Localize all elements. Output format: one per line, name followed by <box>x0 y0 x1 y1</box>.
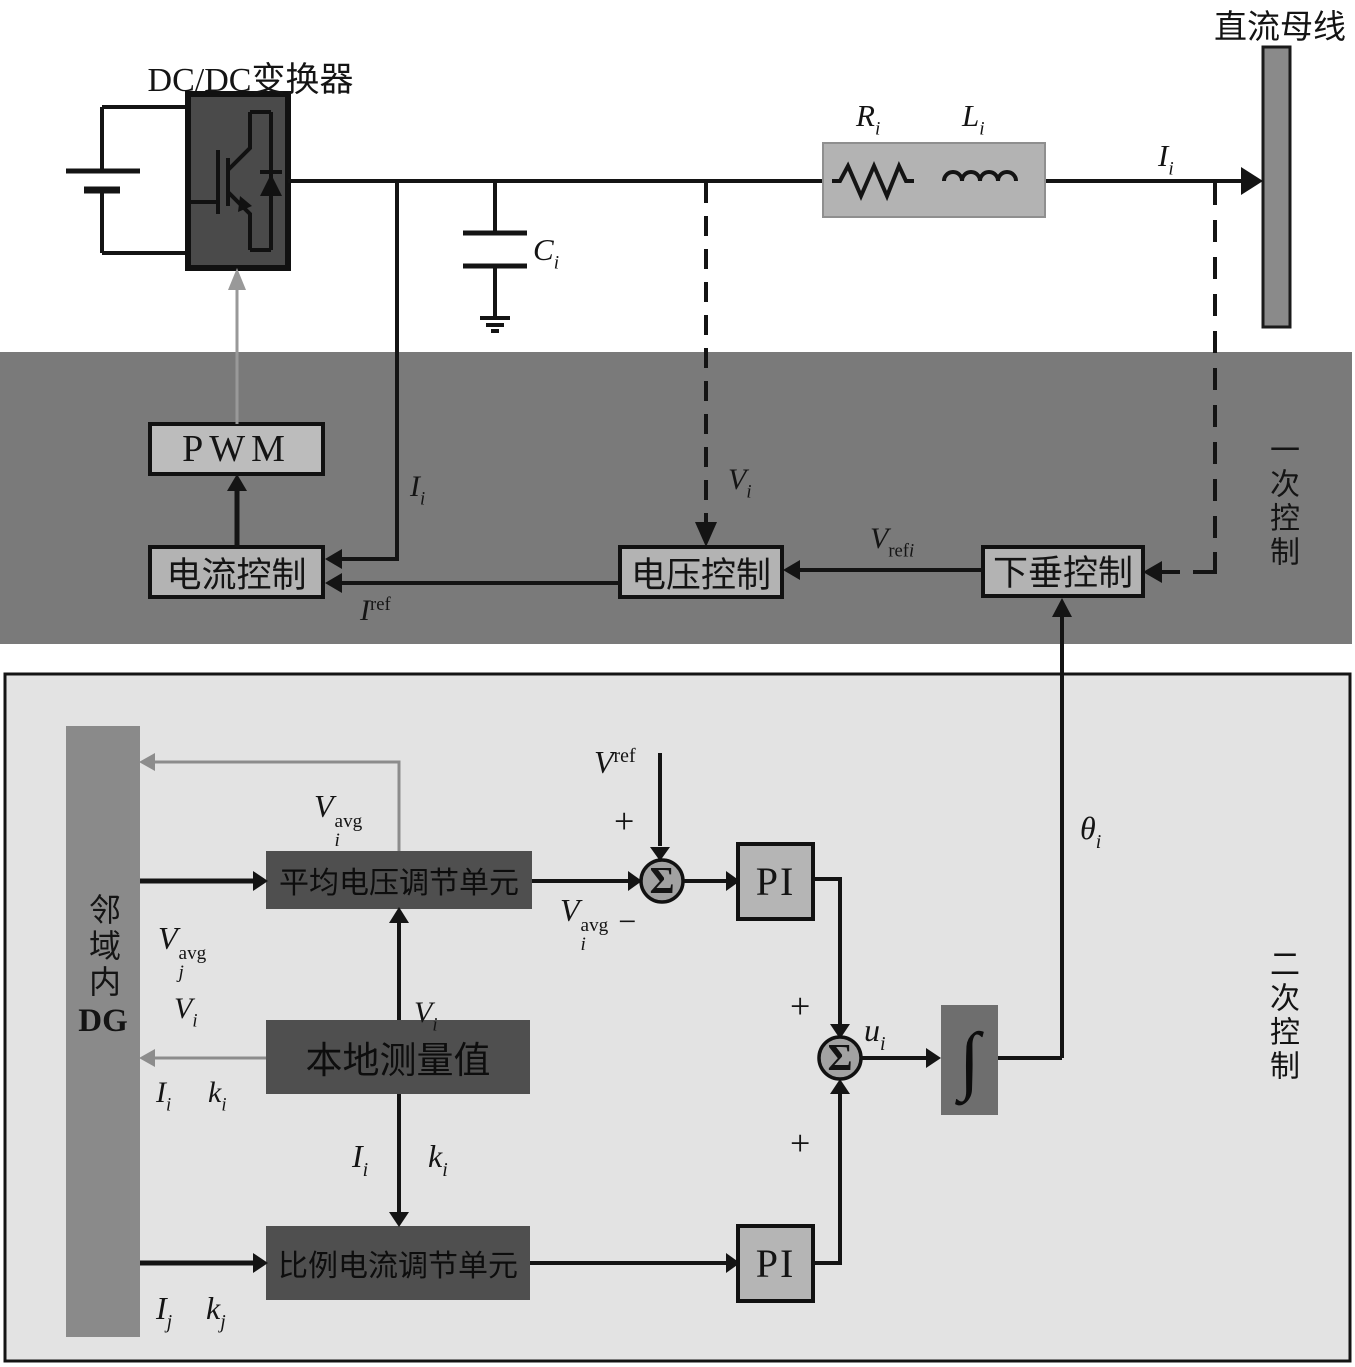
voltage-control-label: 电压控制 <box>620 547 782 597</box>
vref-label: Vref <box>594 744 636 781</box>
dc-microgrid-control-diagram: 直流母线 DC/DC变换器 Ci Ri Li Ii 一次控制 二次控制 PWM … <box>0 0 1355 1367</box>
vi-to-dg-label: Vi <box>174 992 198 1032</box>
diagram-canvas <box>0 0 1355 1367</box>
primary-section-label: 一次控制 <box>1264 434 1298 570</box>
ij-label: Ij <box>156 1290 172 1334</box>
resistance-label: Ri <box>856 98 880 141</box>
current-control-label: 电流控制 <box>150 547 323 597</box>
vi-up-label: Vi <box>414 996 438 1036</box>
bus-arrowhead <box>1241 167 1263 195</box>
capacitor-plates <box>463 233 527 266</box>
ii-to-dg-label: Ii <box>156 1076 171 1116</box>
ui-label: ui <box>864 1012 886 1056</box>
inductance-label: Li <box>962 98 985 141</box>
ki-to-dg-label: ki <box>208 1076 227 1116</box>
dc-bus-label: 直流母线 <box>1206 0 1354 48</box>
bus-current-label: Ii <box>1158 138 1174 181</box>
primary-control-band <box>0 352 1352 644</box>
battery-wires <box>102 107 188 253</box>
capacitor-label: Ci <box>533 232 559 275</box>
voltage-feedback-label: Vi <box>728 463 752 503</box>
ground-symbol <box>480 318 510 331</box>
vrefi-label: Vrefi <box>870 522 914 562</box>
neighbor-dg-label: 邻域内 DG <box>66 893 140 1040</box>
local-measurement-label: 本地测量值 <box>266 1020 530 1094</box>
iref-label: Iref <box>360 594 391 628</box>
neighbor-dg-text: DG <box>78 1003 128 1040</box>
sum1-symbol: Σ <box>647 859 677 903</box>
secondary-control-panel <box>5 674 1350 1361</box>
sum2-plus-top-label: + <box>790 985 810 1027</box>
minus-sign: − <box>618 903 636 939</box>
thetai-label: θi <box>1080 810 1101 854</box>
droop-control-label: 下垂控制 <box>983 546 1143 595</box>
sum2-symbol: Σ <box>825 1036 855 1080</box>
pwm-to-converter-arrowhead <box>228 268 246 290</box>
sum1-plus-label: + <box>614 800 634 842</box>
kj-label: kj <box>206 1290 226 1334</box>
secondary-section-label: 二次控制 <box>1264 948 1298 1084</box>
line-impedance-box <box>823 143 1045 217</box>
pi2-label: PI <box>738 1226 813 1301</box>
ki-down-label: ki <box>428 1138 448 1182</box>
avg-voltage-unit-label: 平均电压调节单元 <box>266 851 532 909</box>
ii-down-label: Ii <box>352 1138 368 1182</box>
sum2-plus-bottom-label: + <box>790 1122 810 1164</box>
converter-label: DC/DC变换器 <box>133 52 368 101</box>
viavg-feedback-label: Vavgi <box>314 788 362 850</box>
vjavg-label: Vavgj <box>158 920 206 982</box>
dc-bus-bar <box>1263 47 1290 327</box>
current-feedback-label: Ii <box>410 470 425 510</box>
viavg-minus-label: Vavgi− <box>560 892 636 954</box>
neighbor-cjk-text: 邻域内 <box>86 893 120 1001</box>
pi1-label: PI <box>738 844 813 919</box>
pwm-label: PWM <box>150 424 323 474</box>
prop-current-unit-label: 比例电流调节单元 <box>266 1226 530 1300</box>
integrator-symbol: ∫ <box>941 1005 998 1115</box>
